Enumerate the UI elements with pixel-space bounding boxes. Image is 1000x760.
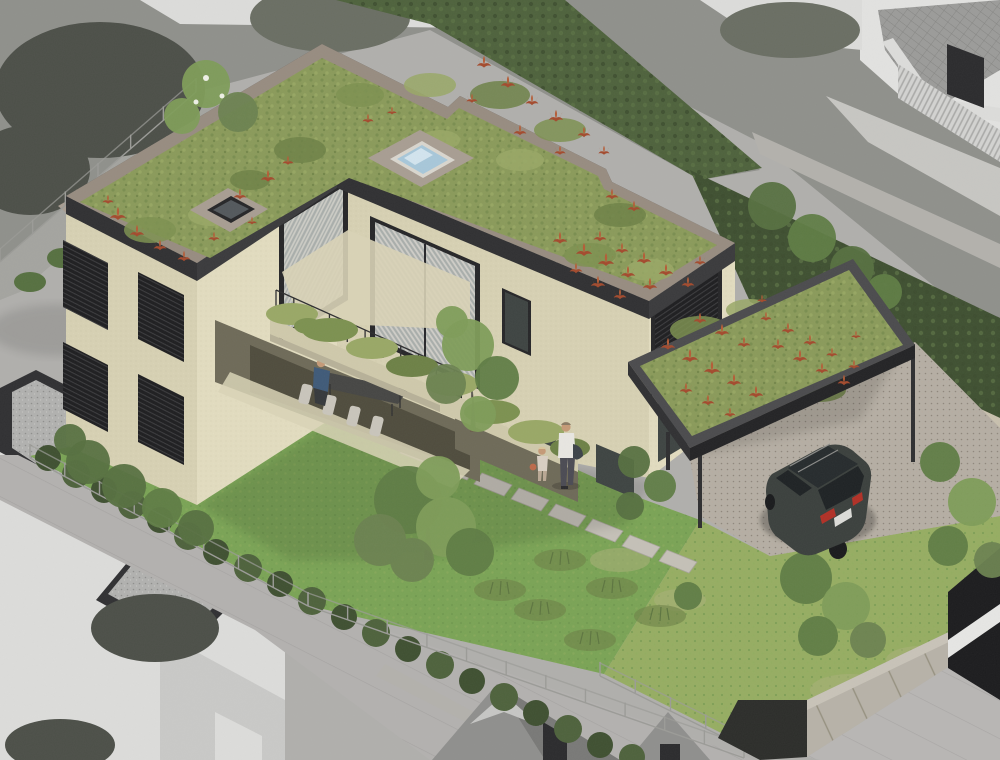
architectural-rendering-stage: [0, 0, 1000, 760]
film-grain: [0, 0, 1000, 760]
rendering-canvas: [0, 0, 1000, 760]
